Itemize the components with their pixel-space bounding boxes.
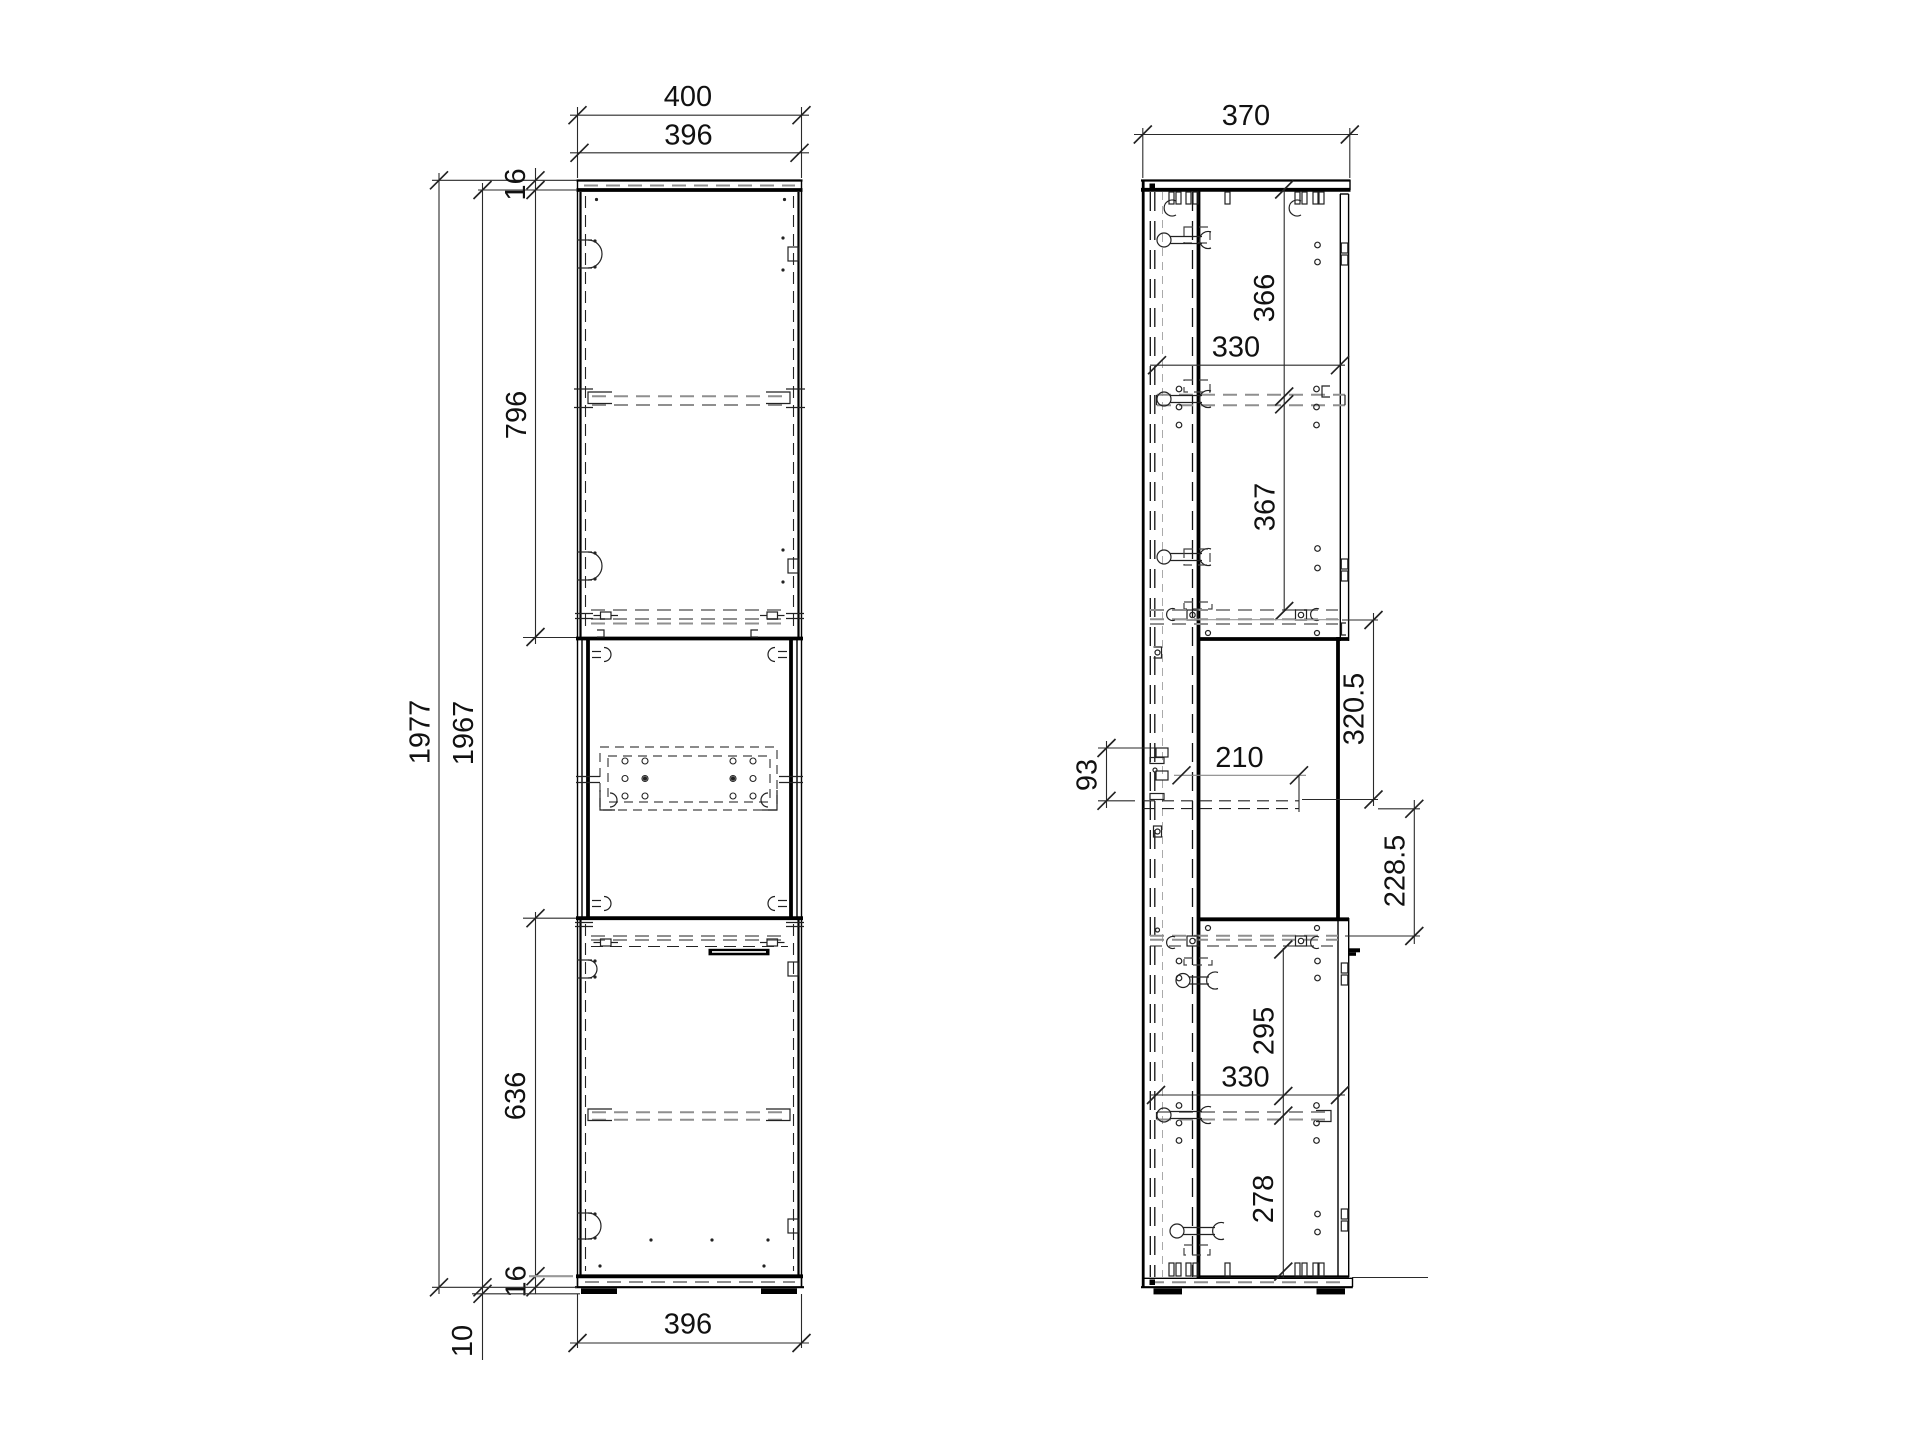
svg-text:330: 330 [1221,1062,1269,1094]
svg-text:93: 93 [1072,759,1104,791]
svg-text:400: 400 [664,81,712,113]
svg-text:278: 278 [1248,1175,1280,1223]
svg-text:10: 10 [447,1325,479,1357]
svg-text:330: 330 [1212,332,1260,364]
svg-text:636: 636 [500,1072,532,1120]
svg-text:16: 16 [500,1265,532,1297]
svg-text:1967: 1967 [448,701,480,766]
svg-text:320.5: 320.5 [1339,673,1371,746]
svg-text:367: 367 [1250,483,1282,531]
svg-text:16: 16 [500,168,532,200]
svg-text:228.5: 228.5 [1380,835,1412,908]
svg-text:366: 366 [1249,274,1281,322]
svg-text:295: 295 [1249,1007,1281,1055]
svg-text:1977: 1977 [405,700,437,765]
svg-text:396: 396 [664,1309,712,1341]
svg-text:370: 370 [1222,100,1270,132]
svg-text:796: 796 [501,391,533,439]
svg-text:210: 210 [1215,742,1263,774]
svg-text:396: 396 [664,119,712,151]
